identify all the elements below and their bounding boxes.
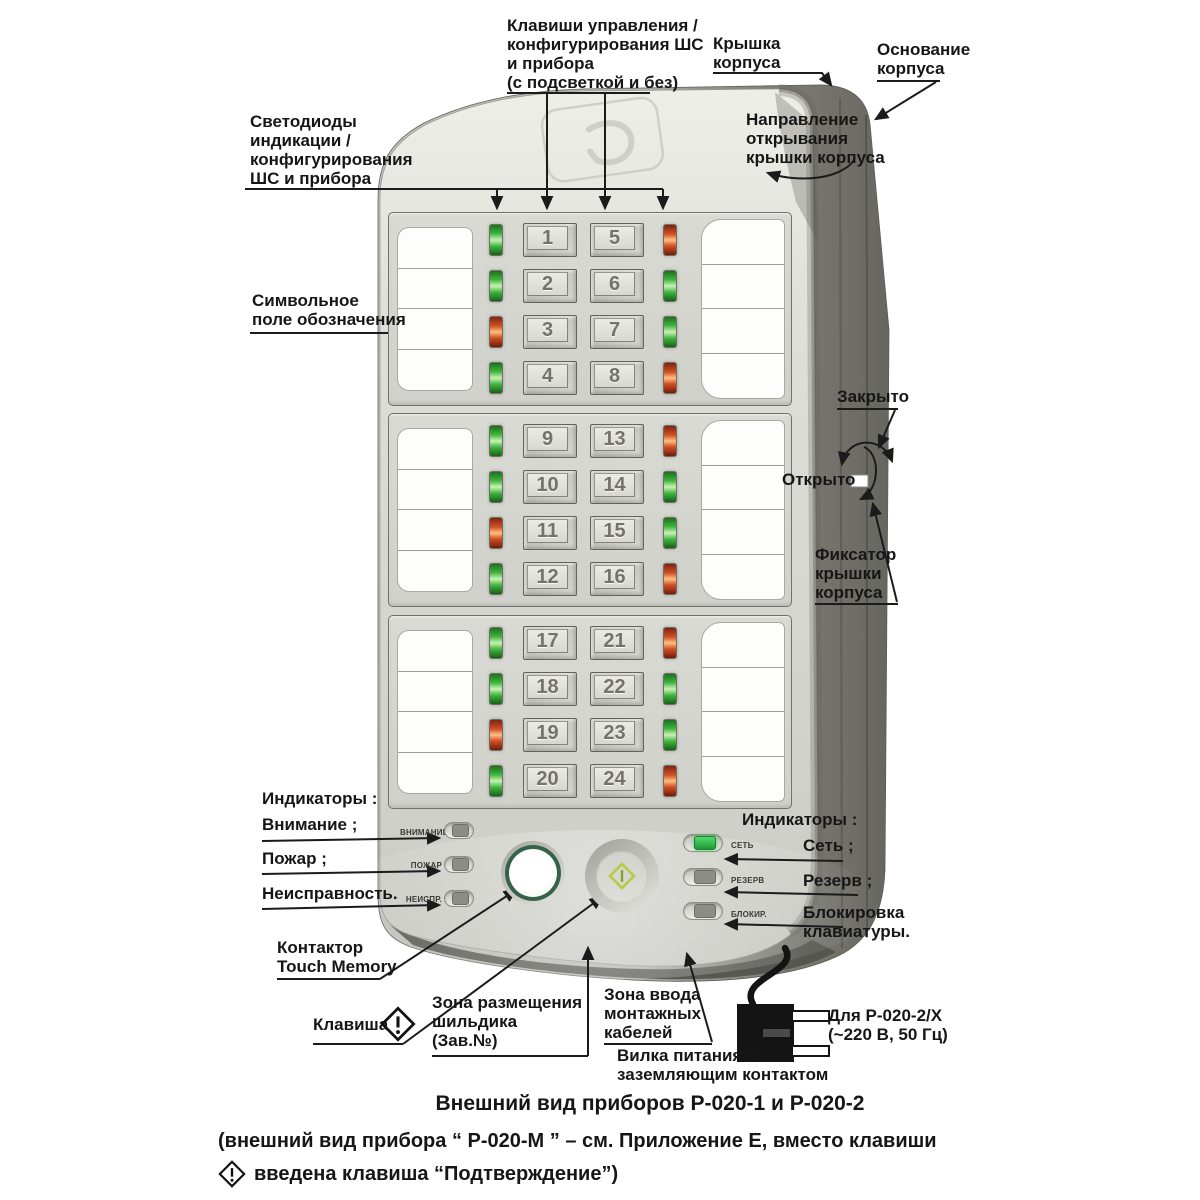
label-model-power: Для Р-020-2/Х (~220 В, 50 Гц) — [828, 1006, 948, 1044]
key-button: 6 — [590, 269, 644, 303]
key-button: 16 — [590, 562, 644, 596]
lamp-label-attention: ВНИМАНИЕ — [400, 828, 442, 837]
key-button: 24 — [590, 764, 644, 798]
key-diamond-icon — [380, 1006, 416, 1042]
label-fault: Неисправность. — [262, 884, 398, 903]
led-indicator — [489, 316, 503, 348]
key-button: 9 — [523, 424, 577, 458]
symbol-label-field — [701, 219, 785, 399]
key-button: 18 — [523, 672, 577, 706]
key-button: 2 — [523, 269, 577, 303]
label-leds: Светодиоды индикации / конфигурирования … — [250, 112, 413, 188]
figure-canvas: 15263748 913101411151216 172118221923202… — [0, 0, 1200, 1200]
symbol-label-field — [397, 630, 473, 794]
caption-note-line2: введена клавиша “Подтверждение”) — [254, 1159, 618, 1189]
label-control-keys: Клавиши управления / конфигурирования ШС… — [507, 16, 704, 92]
key-button: 3 — [523, 315, 577, 349]
key-button: 21 — [590, 626, 644, 660]
caption-note-line1: (внешний вид прибора “ Р-020-М ” – см. П… — [218, 1130, 937, 1152]
key-diamond-icon — [218, 1160, 246, 1188]
key-button: 20 — [523, 764, 577, 798]
attention-lamp — [444, 822, 474, 839]
lamp-label-reserve: РЕЗЕРВ — [731, 876, 764, 885]
led-indicator — [663, 270, 677, 302]
lamp-label-lock: БЛОКИР. — [731, 910, 767, 919]
symbol-label-field — [397, 227, 473, 391]
key-rows: 1721182219232024 — [489, 620, 676, 804]
label-cable-entry-zone: Зона ввода монтажных кабелей — [604, 985, 701, 1042]
label-indicators-left: Индикаторы : — [262, 789, 377, 808]
led-indicator — [489, 517, 503, 549]
figure-caption-title: Внешний вид приборов Р-020-1 и Р-020-2 — [240, 1092, 1060, 1116]
label-nameplate-zone: Зона размещения шильдика (Зав.№) — [432, 993, 582, 1050]
fire-lamp — [444, 856, 474, 873]
key-group-3: 1721182219232024 — [388, 615, 792, 809]
label-latch: Фиксатор крышки корпуса — [815, 545, 896, 602]
led-indicator — [663, 627, 677, 659]
key-button: 1 — [523, 223, 577, 257]
label-reserve: Резерв ; — [803, 871, 872, 890]
led-indicator — [489, 627, 503, 659]
led-indicator — [663, 425, 677, 457]
key-button: 22 — [590, 672, 644, 706]
key-button: 10 — [523, 470, 577, 504]
lamp-label-mains: СЕТЬ — [731, 841, 754, 850]
label-touch-memory: Контактор Touch Memory — [277, 938, 397, 976]
label-fire: Пожар ; — [262, 849, 327, 868]
plug-prong — [792, 1011, 829, 1021]
label-symbol-field: Символьное поле обозначения — [252, 291, 406, 329]
led-indicator — [663, 517, 677, 549]
key-diamond-icon — [607, 861, 637, 891]
led-indicator — [489, 270, 503, 302]
label-power-plug: Вилка питания с заземляющим контактом — [617, 1046, 828, 1084]
label-open-direction: Направление открывания крышки корпуса — [746, 110, 885, 167]
label-attention: Внимание ; — [262, 815, 357, 834]
symbol-label-field — [397, 428, 473, 592]
fault-lamp — [444, 890, 474, 907]
symbol-label-field — [701, 420, 785, 600]
key-button: 13 — [590, 424, 644, 458]
led-indicator — [663, 316, 677, 348]
label-opened: Открыто — [782, 470, 855, 489]
led-indicator — [489, 362, 503, 394]
key-button: 11 — [523, 516, 577, 550]
label-key: Клавиша — [313, 1015, 388, 1034]
figure-caption-note: (внешний вид прибора “ Р-020-М ” – см. П… — [218, 1126, 998, 1189]
label-indicators-right: Индикаторы : — [742, 810, 857, 829]
key-rows: 15263748 — [489, 217, 676, 401]
mains-lamp — [683, 834, 723, 852]
led-indicator — [489, 765, 503, 797]
symbol-label-field — [701, 622, 785, 802]
led-indicator — [489, 563, 503, 595]
label-keyboard-lock: Блокировка клавиатуры. — [803, 903, 910, 941]
led-indicator — [489, 471, 503, 503]
led-indicator — [663, 563, 677, 595]
key-button: 19 — [523, 718, 577, 752]
lamp-label-fault: НЕИСПР. — [400, 895, 442, 904]
led-indicator — [663, 471, 677, 503]
led-indicator — [663, 362, 677, 394]
key-round-button — [585, 839, 659, 913]
key-button: 7 — [590, 315, 644, 349]
label-mains: Сеть ; — [803, 836, 854, 855]
led-indicator — [489, 673, 503, 705]
led-indicator — [663, 719, 677, 751]
key-button: 4 — [523, 361, 577, 395]
key-button: 12 — [523, 562, 577, 596]
touch-memory-contactor — [501, 841, 565, 905]
led-indicator — [663, 224, 677, 256]
led-indicator — [489, 425, 503, 457]
key-rows: 913101411151216 — [489, 418, 676, 602]
led-indicator — [663, 765, 677, 797]
key-button: 15 — [590, 516, 644, 550]
key-button: 14 — [590, 470, 644, 504]
label-base: Основание корпуса — [877, 40, 970, 78]
key-group-2: 913101411151216 — [388, 413, 792, 607]
key-button: 5 — [590, 223, 644, 257]
reserve-lamp — [683, 868, 723, 886]
key-button: 8 — [590, 361, 644, 395]
led-indicator — [489, 719, 503, 751]
label-closed: Закрыто — [837, 387, 909, 406]
label-cover: Крышка корпуса — [713, 34, 780, 72]
key-button: 23 — [590, 718, 644, 752]
lamp-label-fire: ПОЖАР — [400, 861, 442, 870]
lock-lamp — [683, 902, 723, 920]
key-button: 17 — [523, 626, 577, 660]
led-indicator — [489, 224, 503, 256]
led-indicator — [663, 673, 677, 705]
key-group-1: 15263748 — [388, 212, 792, 406]
